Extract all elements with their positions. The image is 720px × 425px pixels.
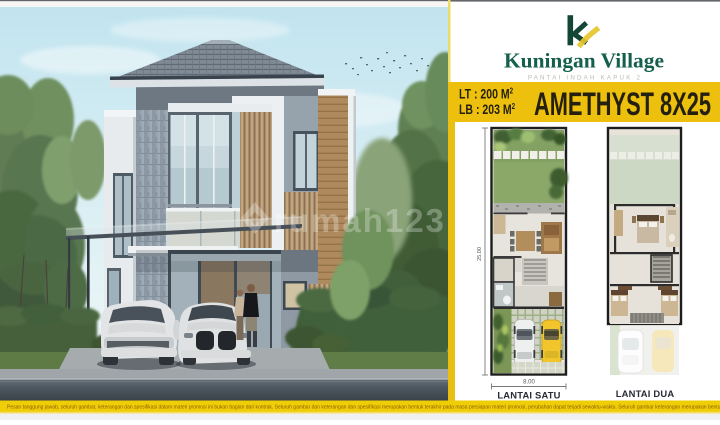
svg-text:LT : 200 M2: LT : 200 M2 — [459, 86, 513, 102]
svg-text:PANTAI INDAH KAPUK 2: PANTAI INDAH KAPUK 2 — [528, 75, 642, 82]
svg-text:25.00: 25.00 — [477, 247, 483, 261]
svg-text:LB : 203 M2: LB : 203 M2 — [459, 102, 515, 118]
svg-text:Kuningan Village: Kuningan Village — [504, 49, 664, 73]
svg-text:8.00: 8.00 — [523, 380, 535, 386]
svg-text:LANTAI DUA: LANTAI DUA — [616, 388, 675, 399]
svg-text:LANTAI SATU: LANTAI SATU — [497, 390, 560, 401]
svg-text:rumah123: rumah123 — [274, 202, 446, 239]
svg-text:Pesan tanggung jawab, seluruh: Pesan tanggung jawab, seluruh gambar, ke… — [7, 405, 720, 411]
svg-text:AMETHYST 8X25: AMETHYST 8X25 — [534, 86, 711, 122]
